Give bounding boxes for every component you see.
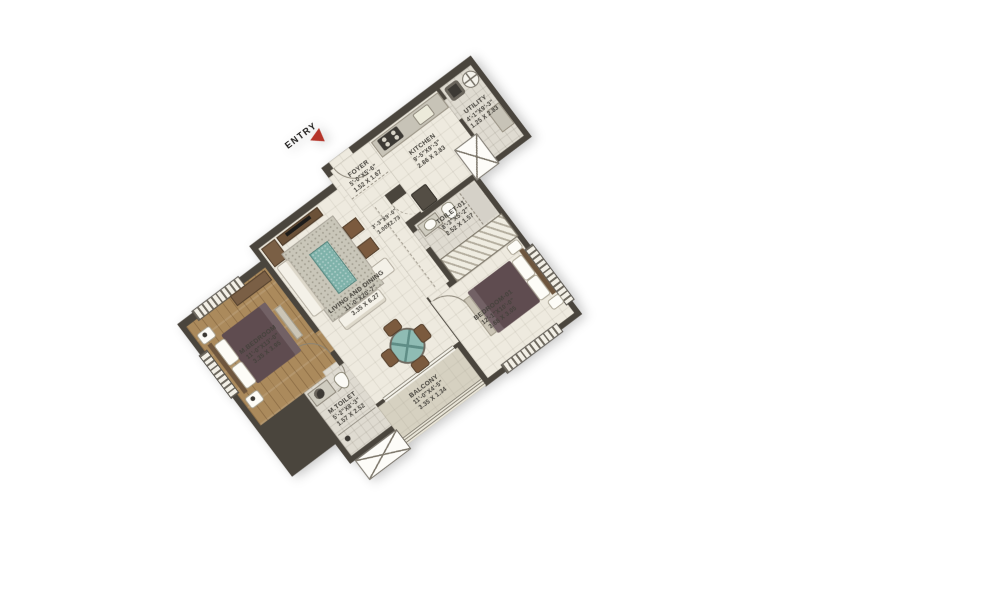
floor-plan-canvas: ENTRY M.BEDROOM 11'-0"X13'-0" 3.35 X 3.9… [0,0,1000,600]
floor-plan: ENTRY M.BEDROOM 11'-0"X13'-0" 3.35 X 3.9… [144,44,646,527]
